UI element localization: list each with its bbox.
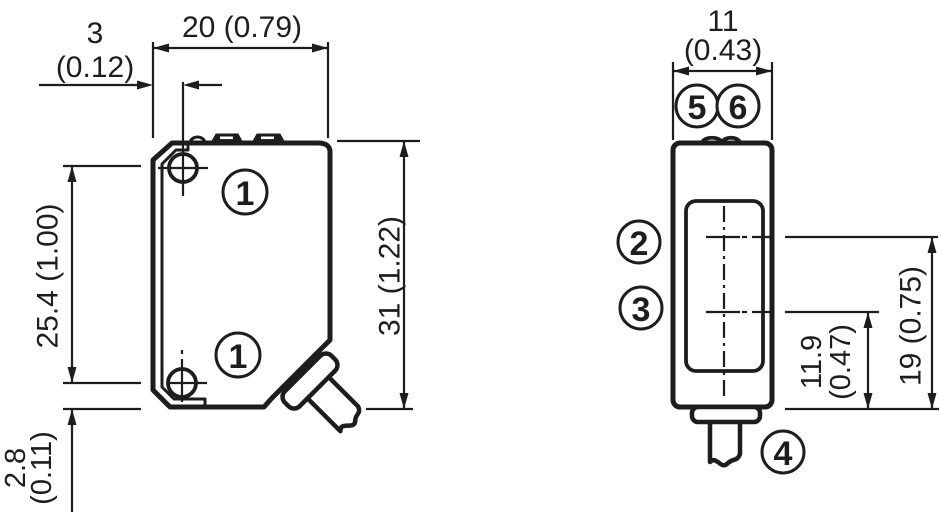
- dim-body-width-label: 20 (0.79): [182, 11, 302, 44]
- top-tab-left-slot: [220, 137, 233, 140]
- callout-1-label: 1: [236, 175, 255, 213]
- dim-sender-axis-label: 19 (0.75): [895, 266, 928, 386]
- dim-hole-offset-value: 3: [87, 17, 104, 50]
- callout-sender-axis: 2: [618, 221, 660, 263]
- right-view: 11 (0.43) 5 6: [618, 5, 939, 473]
- callout-indicator-right: 6: [717, 85, 759, 127]
- dim-body-depth: 11 (0.43): [673, 5, 772, 76]
- dim-body-width: 20 (0.79): [153, 11, 328, 53]
- dim-receiver-axis-value: 11.9: [796, 335, 828, 389]
- mounting-hole-bottom: [167, 350, 207, 402]
- left-cable-assembly: [279, 350, 377, 448]
- dim-sender-axis: 19 (0.75): [895, 237, 937, 409]
- callout-5-label: 5: [688, 89, 707, 127]
- drawing-canvas: 20 (0.79) 3 (0.12) 25.4 (1.00) 2.8 (0.11…: [0, 0, 940, 515]
- right-cable-gland: [692, 407, 760, 422]
- top-tab-right-slot: [261, 137, 274, 140]
- callout-3-label: 3: [632, 291, 651, 329]
- dim-hole-spacing-label: 25.4 (1.00): [32, 203, 65, 348]
- dim-body-height: 31 (1.22): [374, 141, 409, 409]
- mounting-hole-top: [158, 82, 208, 196]
- callout-1-label: 1: [229, 338, 248, 376]
- dimensional-drawing: 20 (0.79) 3 (0.12) 25.4 (1.00) 2.8 (0.11…: [0, 0, 940, 515]
- callout-mounting-hole-top: 1: [223, 170, 267, 214]
- right-housing: [673, 138, 772, 407]
- dim-hole-spacing: 25.4 (1.00): [32, 166, 77, 383]
- callout-2-label: 2: [630, 225, 649, 263]
- dim-body-depth-inch: (0.43): [684, 34, 762, 67]
- callout-mounting-hole-bottom: 1: [216, 333, 260, 377]
- callout-receiver-axis: 3: [620, 287, 662, 329]
- callout-6-label: 6: [729, 89, 748, 127]
- right-cable-assembly: [692, 407, 760, 465]
- dim-hole-to-bottom: 2.8 (0.11): [0, 409, 77, 512]
- dim-hole-offset-inch: (0.12): [56, 51, 134, 84]
- dim-receiver-axis-inch: (0.47): [825, 324, 857, 400]
- dim-receiver-axis: 11.9 (0.47): [796, 312, 873, 409]
- callout-4-label: 4: [774, 435, 793, 473]
- callout-indicator-left: 5: [676, 85, 718, 127]
- right-cable: [710, 420, 740, 465]
- dim-hole-to-bottom-inch: (0.11): [26, 431, 58, 505]
- dim-body-height-label: 31 (1.22): [374, 216, 407, 336]
- left-view: 20 (0.79) 3 (0.12) 25.4 (1.00) 2.8 (0.11…: [0, 11, 420, 512]
- callout-cable: 4: [762, 431, 804, 473]
